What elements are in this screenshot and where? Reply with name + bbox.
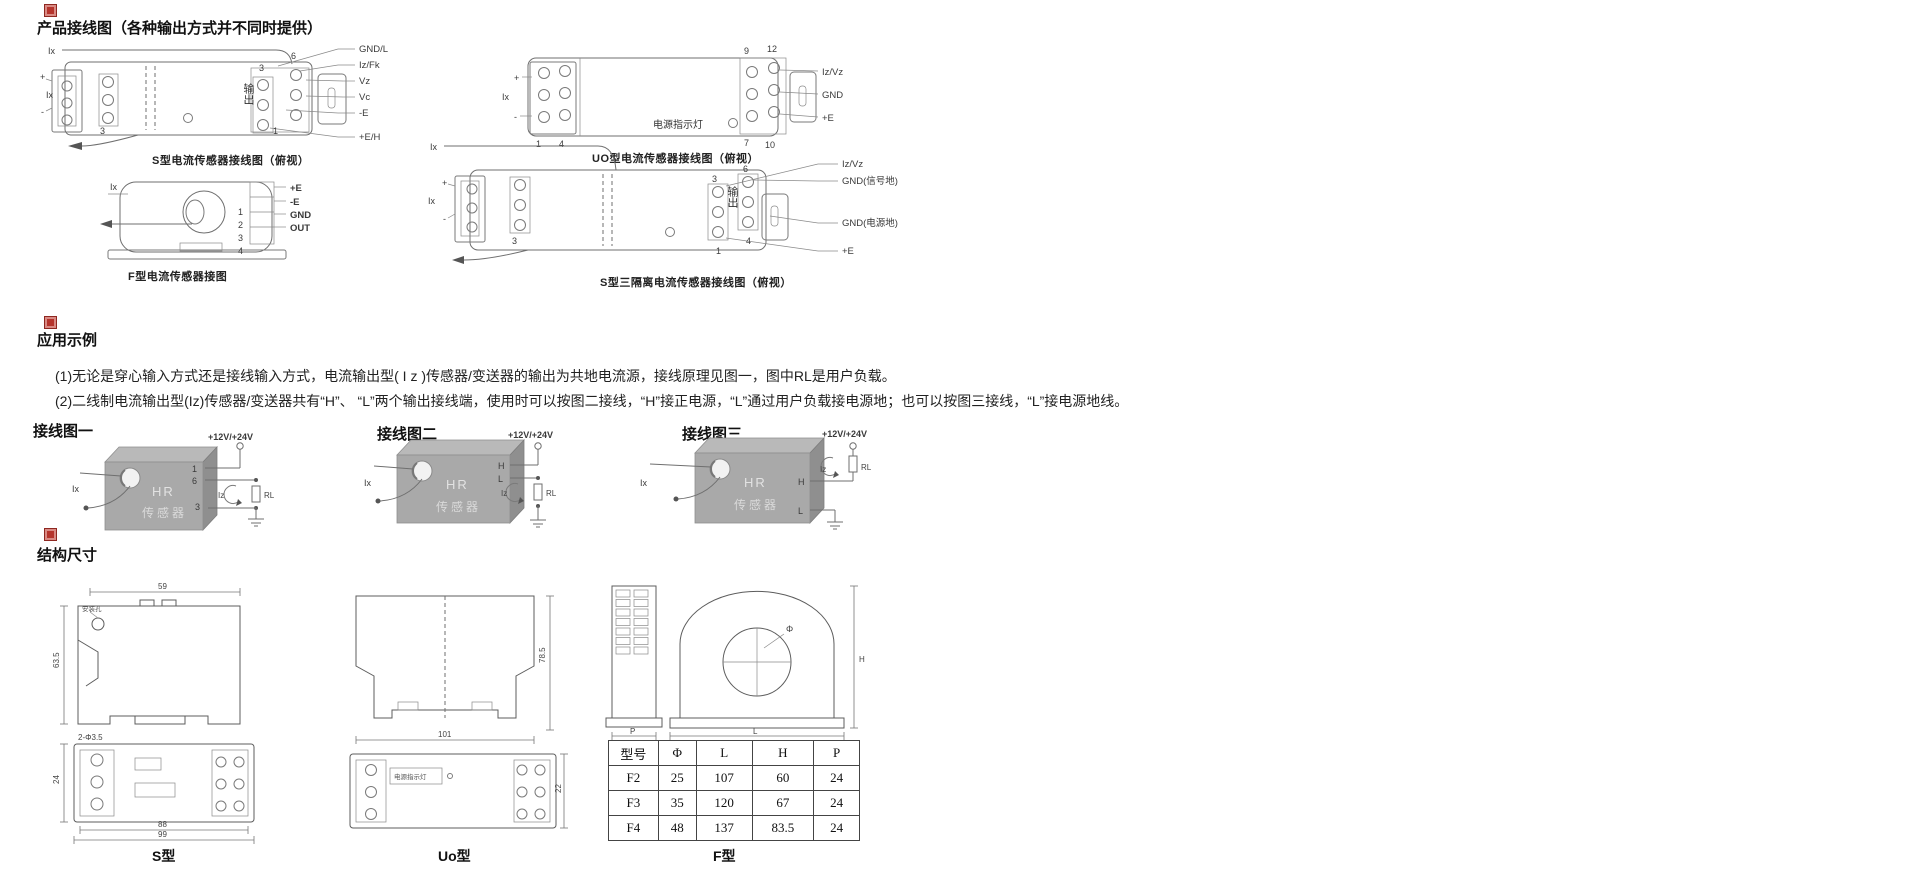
section-marker-icon: [44, 4, 57, 17]
datasheet-page: 产品接线图（各种输出方式并不同时提供）: [0, 0, 1920, 895]
fig1-pin-a: 1: [192, 464, 197, 474]
s3-label-iz-vz: Iz/Vz: [842, 159, 863, 170]
hr-figure-3: +12V/+24V Ix HR 传感器 H L Iz RL: [610, 428, 910, 540]
s-ix-top-label: Ix: [48, 46, 56, 56]
section-marker-icon: [44, 528, 57, 541]
f-dim-phi: Φ: [786, 624, 793, 634]
uo-label-gnd: GND: [822, 90, 843, 101]
wiring-section-title: 产品接线图（各种输出方式并不同时提供）: [37, 17, 322, 38]
fig2-pin-a: H: [498, 461, 505, 471]
s-hole-label: 安装孔: [82, 604, 102, 613]
application-section-title: 应用示例: [37, 329, 97, 350]
table-cell: F2: [609, 766, 659, 791]
hr-figure-2: +12V/+24V Ix HR 传感器 H L Iz RL: [318, 428, 598, 540]
uo-type-dimension-drawing: 78.5 101 电源指示灯 22: [338, 578, 573, 846]
f-type-dimension-shapes: [606, 586, 858, 740]
f-pin-4: 4: [238, 246, 243, 256]
uo-type-dimension-shapes: [350, 596, 568, 828]
f-dim-l: L: [753, 727, 758, 736]
s-label-iz-fk: Iz/Fk: [359, 60, 380, 71]
uo-power-led-label: 电源指示灯: [653, 118, 703, 131]
f-pin-3: 3: [238, 233, 243, 243]
s-type-dimension-shapes: [60, 588, 254, 844]
s3-ix-top-label: Ix: [430, 142, 438, 152]
uo-ix-label: Ix: [502, 92, 510, 102]
s3-pin6: 6: [743, 164, 748, 174]
table-cell: 24: [814, 791, 860, 816]
fig2-ix-label: Ix: [364, 478, 372, 488]
table-cell: 24: [814, 816, 860, 841]
s-diagram-caption: S型电流传感器接线图（俯视）: [152, 152, 309, 168]
table-cell: F4: [609, 816, 659, 841]
table-cell: F3: [609, 791, 659, 816]
application-paragraph-2: (2)二线制电流输出型(Iz)传感器/变送器共有“H”、 “L”两个输出接线端，…: [55, 391, 1128, 411]
s-label-plus-e-h: +E/H: [359, 132, 381, 143]
f-type-dimension-drawing: P Φ H L: [598, 578, 888, 744]
fig2-device-type: 传感器: [436, 499, 481, 514]
s-dim-side: 24: [52, 775, 61, 784]
table-header-p: P: [814, 741, 860, 766]
f-diagram-caption: F型电流传感器接图: [128, 268, 227, 284]
f-drawing-caption: F型: [713, 846, 736, 866]
fig3-device-type: 传感器: [734, 497, 779, 512]
fig1-pin-c: 3: [195, 502, 200, 512]
fig3-device-name: HR: [744, 475, 767, 490]
table-row: F2 25 107 60 24: [609, 766, 860, 791]
s-ix-left-label: Ix: [46, 90, 54, 100]
s-label-vz: Vz: [359, 76, 370, 87]
fig3-ix-label: Ix: [640, 478, 648, 488]
s-dim-l1: 88: [158, 820, 167, 829]
s3-pin1: 1: [716, 246, 721, 256]
fig3-pin-a: H: [798, 477, 805, 487]
section-marker-icon: [44, 316, 57, 329]
f-pin-2: 2: [238, 220, 243, 230]
s-type-dimension-drawing: 59 63.5 安装孔 2-Φ3.5 24 88 99: [40, 578, 300, 846]
s3-type-body: [444, 146, 838, 264]
table-cell: 25: [658, 766, 696, 791]
f-label-gnd: GND: [290, 210, 311, 221]
table-header-model: 型号: [609, 741, 659, 766]
uo-pin9-label: 9: [744, 46, 749, 56]
s3-pin4: 4: [746, 236, 751, 246]
s3-minus-label: -: [443, 214, 446, 224]
fig2-rl-label: RL: [546, 489, 557, 498]
fig1-device-type: 传感器: [142, 505, 187, 520]
fig2-device-name: HR: [446, 477, 469, 492]
s3-label-gnd-sig: GND(信号地): [842, 175, 898, 187]
uo-plus-label: +: [514, 73, 519, 83]
uo-pin12-label: 12: [767, 44, 777, 54]
s-dim-top: 59: [158, 582, 167, 591]
table-cell: 60: [752, 766, 814, 791]
fig1-rl-label: RL: [264, 491, 275, 500]
s-type-wiring-diagram: Ix + Ix - 3 输出 3 6 1 GND/L Iz/Fk Vz Vc -…: [38, 38, 418, 168]
table-cell: 137: [696, 816, 752, 841]
uo-dim-height: 78.5: [538, 647, 547, 663]
s-plus-label: +: [40, 72, 45, 82]
fig1-pin-b: 6: [192, 476, 197, 486]
s-drawing-caption: S型: [152, 846, 175, 866]
f-label-minus-e: -E: [290, 197, 300, 208]
table-header-row: 型号 Φ L H P: [609, 741, 860, 766]
hr-figure-1: +12V/+24V Ix HR 传感器 1 6 3 Iz RL: [30, 428, 310, 540]
s3-pin3-inner: 3: [512, 236, 517, 246]
table-cell: 83.5: [752, 816, 814, 841]
uo-minus-label: -: [514, 112, 517, 122]
table-header-l: L: [696, 741, 752, 766]
s-pin3: 3: [259, 63, 264, 73]
s3-plus-label: +: [442, 178, 447, 188]
uo-drawing-caption: Uo型: [438, 846, 471, 866]
application-paragraph-1: (1)无论是穿心输入方式还是接线输入方式，电流输出型( I z )传感器/变送器…: [55, 366, 896, 386]
fig2-pin-b: L: [498, 474, 503, 484]
table-cell: 120: [696, 791, 752, 816]
uo-label-plus-e: +E: [822, 113, 834, 124]
fig1-supply-label: +12V/+24V: [208, 432, 253, 442]
fig3-supply-label: +12V/+24V: [822, 429, 867, 439]
s-label-gnd-l: GND/L: [359, 44, 388, 55]
f-type-wiring-diagram: Ix 1 2 3 4 +E -E GND OUT: [92, 176, 332, 268]
dimension-table: 型号 Φ L H P F2 25 107 60 24 F3 35 120 67 …: [608, 740, 860, 841]
f-label-out: OUT: [290, 223, 310, 234]
f-label-plus-e: +E: [290, 183, 302, 194]
s3-ix-left-label: Ix: [428, 196, 436, 206]
uo-dim-length: 101: [438, 730, 452, 739]
uo-label-iz-vz: Iz/Vz: [822, 67, 843, 78]
s3-output-label: 输出: [726, 185, 739, 208]
table-header-phi: Φ: [658, 741, 696, 766]
s-dim-holes: 2-Φ3.5: [78, 733, 103, 742]
s-output-label: 输出: [242, 82, 255, 105]
s3-pin3: 3: [712, 174, 717, 184]
s-pin3-inner: 3: [100, 126, 105, 136]
table-cell: 107: [696, 766, 752, 791]
fig3-pin-b: L: [798, 506, 803, 516]
f-dim-p: P: [630, 727, 635, 736]
f-type-body: [100, 182, 286, 259]
s3-diagram-caption: S型三隔离电流传感器接线图（俯视）: [600, 274, 792, 290]
fig1-ix-label: Ix: [72, 484, 80, 494]
dimensions-section-title: 结构尺寸: [37, 544, 97, 565]
s3-type-wiring-diagram: Ix + Ix - 3 输出 3 6 1 4 Iz/Vz GND(信号地) GN…: [418, 136, 918, 271]
uo-power-led-label-small: 电源指示灯: [394, 772, 427, 781]
s-type-body: [46, 49, 355, 150]
f-ix-label: Ix: [110, 182, 118, 192]
fig2-supply-label: +12V/+24V: [508, 430, 553, 440]
s-label-vc: Vc: [359, 92, 370, 103]
s-label-minus-e: -E: [359, 108, 369, 119]
table-header-h: H: [752, 741, 814, 766]
fig1-device-name: HR: [152, 484, 175, 499]
fig3-iz-label: Iz: [820, 465, 826, 474]
uo-dim-side: 22: [554, 784, 563, 793]
table-cell: 24: [814, 766, 860, 791]
s3-label-plus-e: +E: [842, 246, 854, 257]
f-dim-h: H: [859, 655, 865, 664]
s3-label-gnd-pwr: GND(电源地): [842, 217, 898, 229]
s-pin6: 6: [291, 51, 296, 61]
table-cell: 67: [752, 791, 814, 816]
table-row: F4 48 137 83.5 24: [609, 816, 860, 841]
table-row: F3 35 120 67 24: [609, 791, 860, 816]
fig1-iz-label: Iz: [218, 491, 224, 500]
s-dim-l2: 99: [158, 830, 167, 839]
f-pin-1: 1: [238, 207, 243, 217]
fig2-iz-label: Iz: [501, 489, 507, 498]
s-pin1: 1: [273, 126, 278, 136]
fig3-rl-label: RL: [861, 463, 872, 472]
s-minus-label: -: [41, 107, 44, 117]
table-cell: 48: [658, 816, 696, 841]
table-cell: 35: [658, 791, 696, 816]
s-dim-left: 63.5: [52, 652, 61, 668]
